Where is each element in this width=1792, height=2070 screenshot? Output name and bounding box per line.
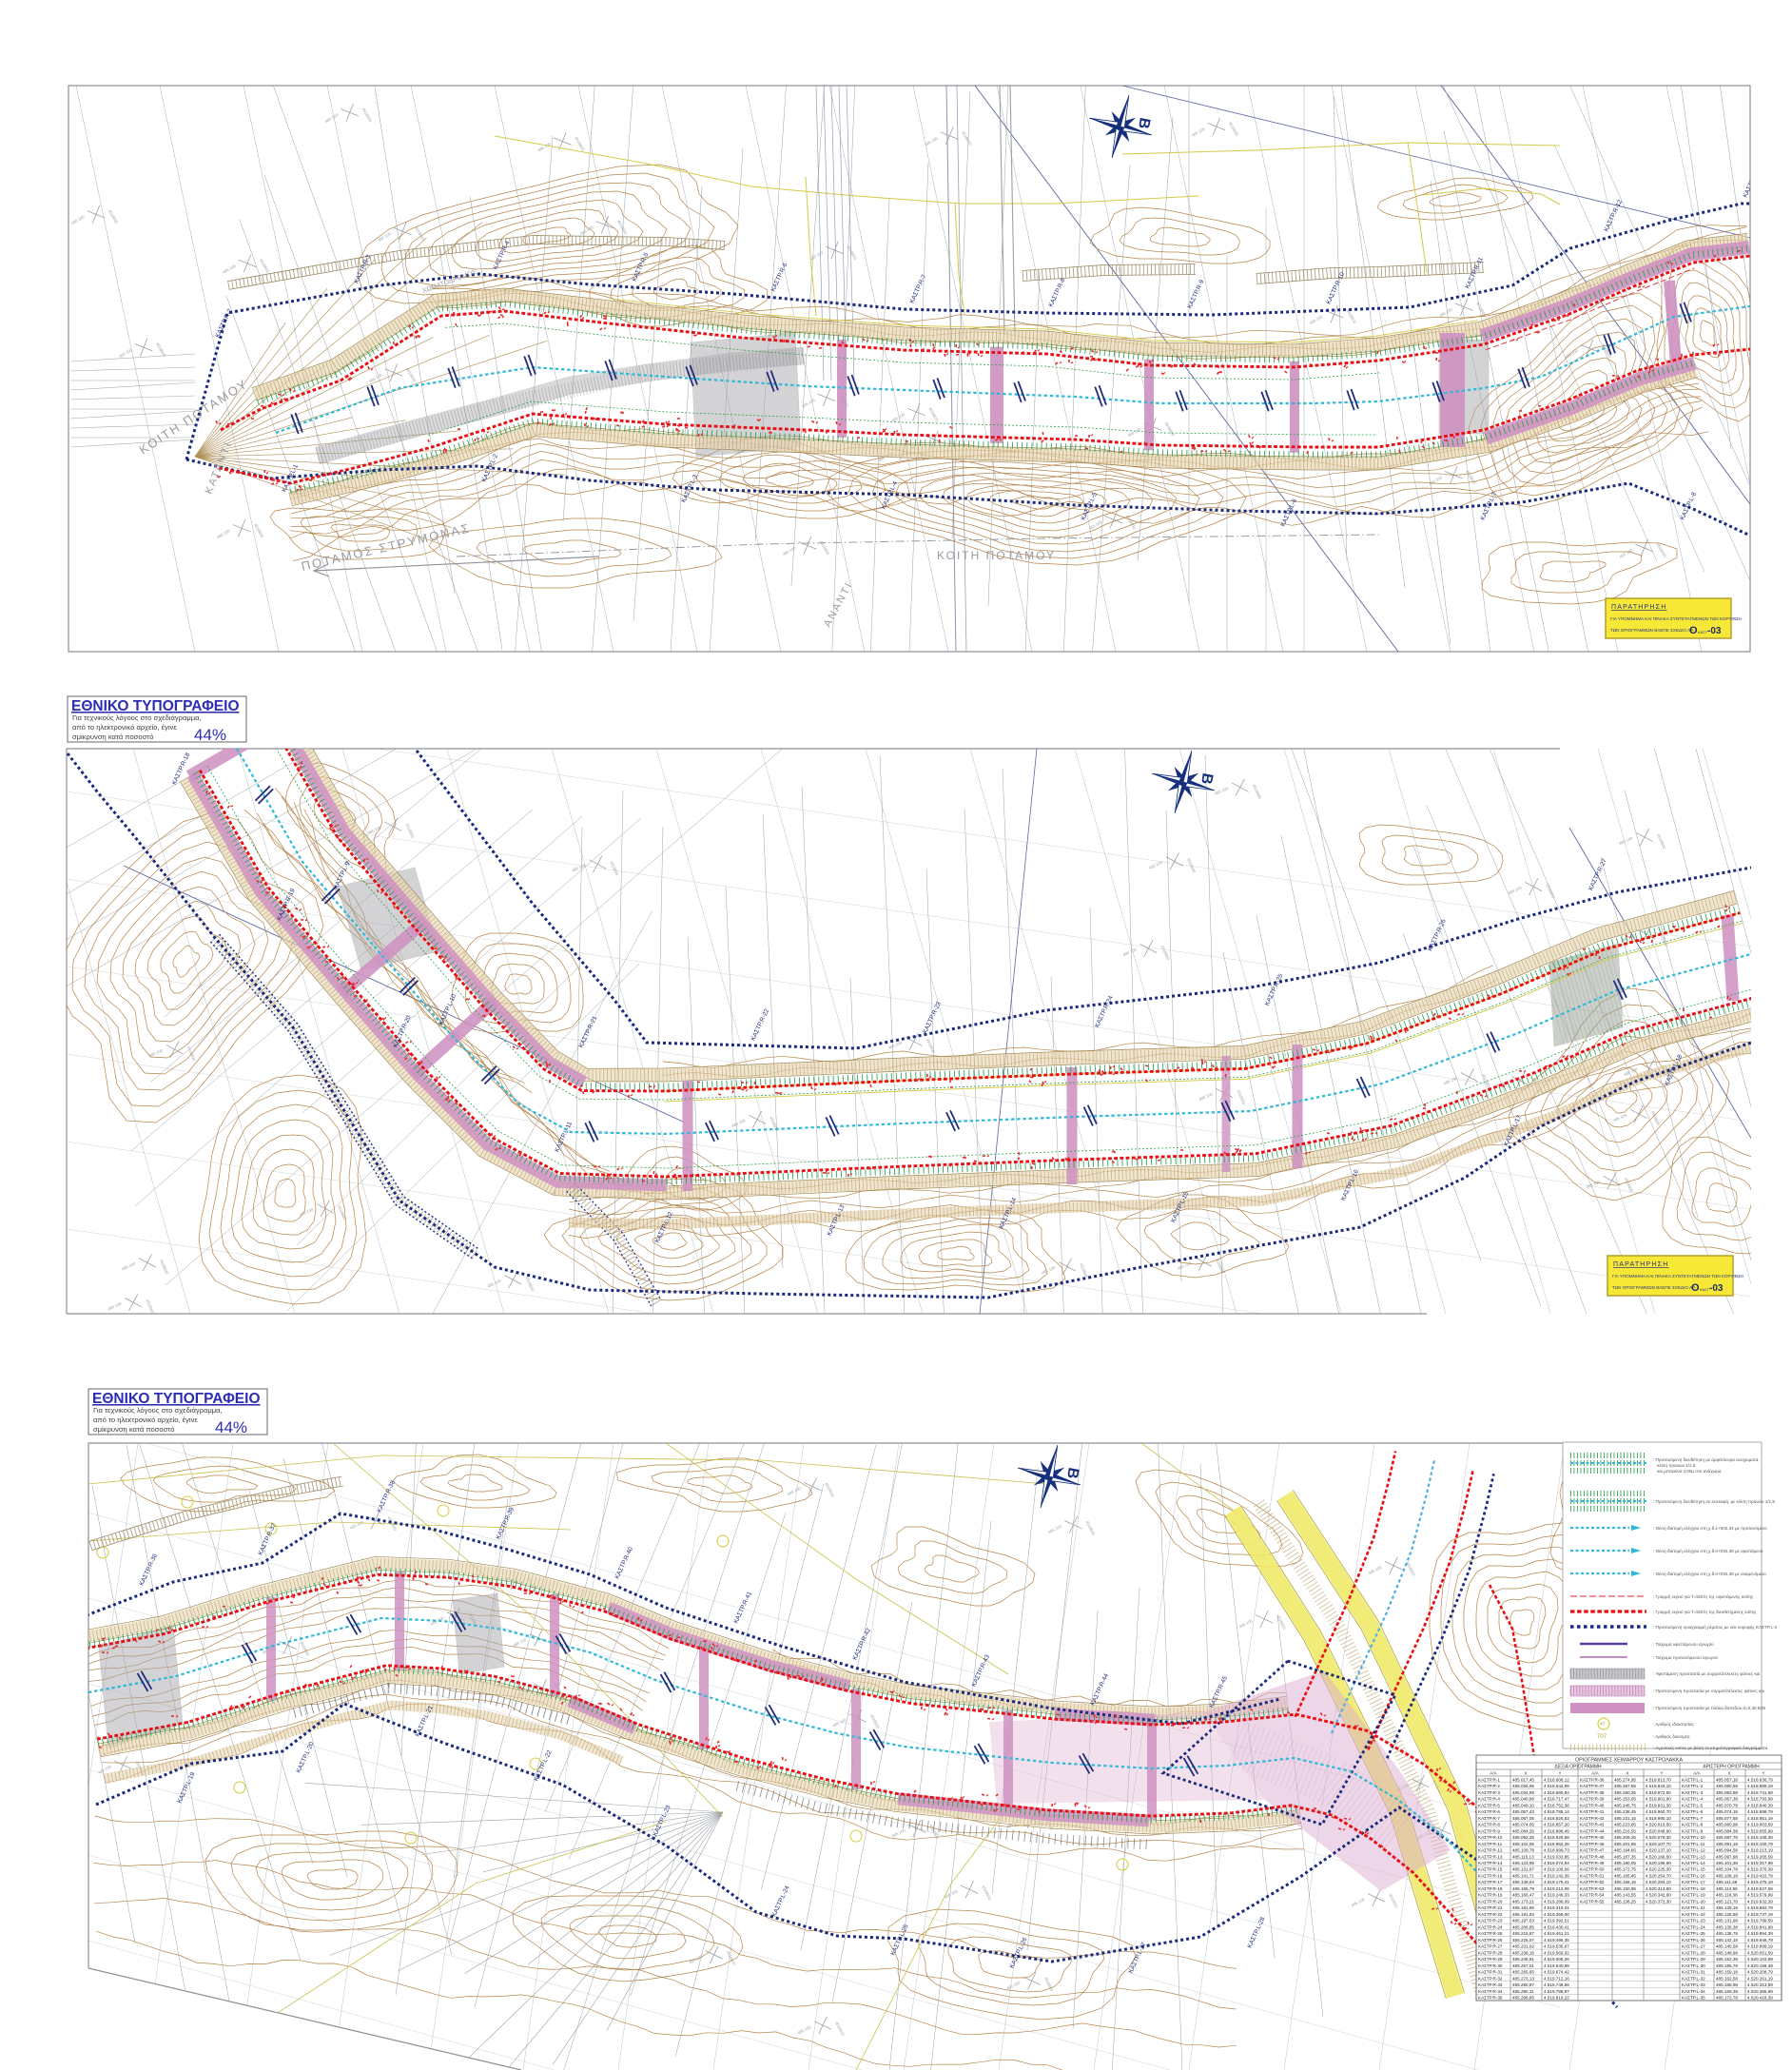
svg-text:ΚΑΣΤΡ.R-35: ΚΑΣΤΡ.R-35 <box>1478 1996 1503 2001</box>
svg-text:485.231,15: 485.231,15 <box>1614 1816 1636 1821</box>
svg-text:από το ηλεκτρονικό αρχείο, έγι: από το ηλεκτρονικό αρχείο, έγινε <box>93 1416 198 1424</box>
svg-text:485.080,98: 485.080,98 <box>1716 1823 1738 1827</box>
svg-text:ΚΑΣΤΡ.L-22: ΚΑΣΤΡ.L-22 <box>1682 1912 1705 1917</box>
svg-text:485.131,67: 485.131,67 <box>1512 1867 1534 1872</box>
svg-text:: Γραμμή νερού για Τ=50έτη της: : Γραμμή νερού για Τ=50έτη της υφιστάμεν… <box>1653 1593 1754 1599</box>
svg-text:ΚΑΣΤΡ.L-32: ΚΑΣΤΡ.L-32 <box>1682 1976 1705 1981</box>
svg-text:4.519.430,41: 4.519.430,41 <box>1544 1924 1569 1929</box>
svg-text:4.520.166,50: 4.520.166,50 <box>1646 1854 1671 1859</box>
svg-text:485.057,43: 485.057,43 <box>1512 1809 1534 1814</box>
svg-text:σμίκρυνση κατά ποσοστό: σμίκρυνση κατά ποσοστό <box>72 732 154 741</box>
svg-text:485.201,95: 485.201,95 <box>1614 1842 1636 1846</box>
svg-text:485.131,98: 485.131,98 <box>1716 1919 1738 1924</box>
svg-text:485.092,26: 485.092,26 <box>1512 1835 1534 1840</box>
svg-text:485.101,38: 485.101,38 <box>1716 1861 1738 1865</box>
svg-text:Α/Α: Α/Α <box>1490 1771 1497 1776</box>
svg-text:ΚΑΣΤΡ.L-13: ΚΑΣΤΡ.L-13 <box>1682 1854 1705 1859</box>
svg-text:ΚΑΣΤΡ.R-10: ΚΑΣΤΡ.R-10 <box>1478 1835 1503 1840</box>
svg-text:4.519.055,99: 4.519.055,99 <box>1747 1828 1773 1833</box>
svg-text:ΚΑΣΤΡ.R-20: ΚΑΣΤΡ.R-20 <box>1478 1900 1503 1904</box>
svg-text:4.518.785,14: 4.518.785,14 <box>1544 1809 1569 1814</box>
svg-text:4.519.843,10: 4.519.843,10 <box>1646 1784 1671 1788</box>
svg-text:485.159,18: 485.159,18 <box>1716 1970 1738 1975</box>
svg-text:ΚΑΣΤΡ.R-6: ΚΑΣΤΡ.R-6 <box>1478 1809 1500 1814</box>
svg-text:ΚΑΣΤΡ.R-26: ΚΑΣΤΡ.R-26 <box>1478 1938 1503 1943</box>
svg-text:: Προτεινόμενη διευθέτηση σε ε: : Προτεινόμενη διευθέτηση σε εκσκαφή, με… <box>1653 1498 1775 1504</box>
svg-text:4.519.640,99: 4.519.640,99 <box>1544 1963 1569 1968</box>
svg-text:ΚΑΣΤΡ.R-51: ΚΑΣΤΡ.R-51 <box>1580 1874 1605 1879</box>
svg-text:: Θέση-διατομή ελέγχου στη χ.θ: : Θέση-διατομή ελέγχου στη χ.θ.0+040,39 … <box>1653 1548 1763 1553</box>
svg-text:485.109,78: 485.109,78 <box>1512 1848 1534 1853</box>
svg-text:485.173,21: 485.173,21 <box>1512 1900 1534 1904</box>
svg-text:ΠΑΡΑΤΗΡΗΣΗ: ΠΑΡΑΤΗΡΗΣΗ <box>1613 1261 1668 1268</box>
svg-text:ΚΑΣΤΡ.L-33: ΚΑΣΤΡ.L-33 <box>1682 1982 1705 1987</box>
svg-text:ΚΑΣΤΡ.R-19: ΚΑΣΤΡ.R-19 <box>1478 1893 1503 1898</box>
svg-text:4.520.107,70: 4.520.107,70 <box>1646 1842 1671 1846</box>
svg-text:485.273,13: 485.273,13 <box>1512 1976 1534 1981</box>
svg-text:Χ: Χ <box>1727 1771 1730 1776</box>
svg-text:485.231,02: 485.231,02 <box>1512 1944 1534 1949</box>
svg-text:4.518.680,84: 4.518.680,84 <box>1544 1790 1569 1795</box>
svg-text:ΚΑΣΤΡ.L-26: ΚΑΣΤΡ.L-26 <box>1682 1938 1705 1943</box>
svg-text:σμίκρυνση κατά ποσοστό: σμίκρυνση κατά ποσοστό <box>93 1425 175 1434</box>
svg-text:485.063,98: 485.063,98 <box>1716 1790 1738 1795</box>
svg-text:485.084,38: 485.084,38 <box>1716 1828 1738 1833</box>
svg-text:485.165,98: 485.165,98 <box>1716 1982 1738 1987</box>
svg-text:: Θέση-διατομή ελέγχου στη χ.θ: : Θέση-διατομή ελέγχου στη χ.θ.0+040,39 … <box>1653 1571 1766 1576</box>
svg-text:ΚΑΣΤΡ.R-49: ΚΑΣΤΡ.R-49 <box>1580 1861 1605 1865</box>
svg-text:4.519.872,50: 4.519.872,50 <box>1646 1790 1671 1795</box>
svg-text:: Υφιστάμενη προστασία με συρμ: : Υφιστάμενη προστασία με συρματόπλεκτες… <box>1653 1670 1760 1676</box>
svg-text:-03: -03 <box>1709 1283 1724 1294</box>
svg-text:Υ: Υ <box>1762 1771 1764 1776</box>
svg-text:485.074,18: 485.074,18 <box>1716 1809 1738 1814</box>
svg-text:4.518.857,20: 4.518.857,20 <box>1544 1823 1569 1827</box>
svg-text:4.519.535,97: 4.519.535,97 <box>1544 1944 1569 1949</box>
svg-text:4.520.195,90: 4.520.195,90 <box>1646 1861 1671 1865</box>
svg-text:: Αριθμός ιδιοκτησίας: : Αριθμός ιδιοκτησίας <box>1653 1721 1695 1727</box>
svg-text:485.215,87: 485.215,87 <box>1512 1931 1534 1936</box>
svg-text:4.519.632,39: 4.519.632,39 <box>1747 1900 1773 1904</box>
svg-text:Χ: Χ <box>1626 1771 1628 1776</box>
svg-text:-03: -03 <box>1707 626 1722 636</box>
svg-text:ΚΑΣΤΡ.R-37: ΚΑΣΤΡ.R-37 <box>1580 1784 1605 1788</box>
svg-text:4.518.962,28: 4.518.962,28 <box>1544 1842 1569 1846</box>
svg-text:ΚΑΣΤΡ.L-31: ΚΑΣΤΡ.L-31 <box>1682 1970 1705 1975</box>
svg-text:ΚΑΣΤΡ.L-17: ΚΑΣΤΡ.L-17 <box>1682 1880 1705 1884</box>
svg-text:4.520.365,99: 4.520.365,99 <box>1747 1989 1773 1994</box>
svg-text:485.257,01: 485.257,01 <box>1512 1963 1534 1968</box>
svg-text:485.180,05: 485.180,05 <box>1614 1861 1636 1865</box>
svg-text:485.118,38: 485.118,38 <box>1716 1893 1738 1898</box>
svg-text:4.520.137,10: 4.520.137,10 <box>1646 1848 1671 1853</box>
svg-text:485.152,38: 485.152,38 <box>1716 1957 1738 1962</box>
svg-text:ΚΑΣΤΡ.R-8: ΚΑΣΤΡ.R-8 <box>1478 1823 1500 1827</box>
svg-text:485.067,38: 485.067,38 <box>1716 1797 1738 1802</box>
svg-text:: Αγροτικές κοίτες με βάση τα: : Αγροτικές κοίτες με βάση τα κτηματογρα… <box>1653 1745 1768 1750</box>
svg-text:ΚΑΣΤ: ΚΑΣΤ <box>1698 631 1707 635</box>
svg-text:ΚΑΣΤΡ.R-34: ΚΑΣΤΡ.R-34 <box>1478 1989 1503 1994</box>
svg-text:ΚΑΣΤΡ.L-23: ΚΑΣΤΡ.L-23 <box>1682 1919 1705 1924</box>
svg-text:485.142,18: 485.142,18 <box>1716 1938 1738 1943</box>
svg-text:ΚΑΣΤΡ.L-30: ΚΑΣΤΡ.L-30 <box>1682 1963 1705 1968</box>
svg-text:ΓΙΑ ΥΠΟΜΝΗΜΑ ΚΑΙ ΠΙΝΑΚΑ ΣΥΝΤΕΤ: ΓΙΑ ΥΠΟΜΝΗΜΑ ΚΑΙ ΠΙΝΑΚΑ ΣΥΝΤΕΤΑΓΜΕΝΩΝ ΤΩ… <box>1612 1274 1743 1279</box>
svg-text:4.518.752,38: 4.518.752,38 <box>1544 1803 1569 1807</box>
svg-text:ΚΑΣΤΡ.L-4: ΚΑΣΤΡ.L-4 <box>1682 1797 1704 1802</box>
svg-text:485.155,78: 485.155,78 <box>1716 1963 1738 1968</box>
svg-text:4.519.684,79: 4.519.684,79 <box>1747 1905 1773 1910</box>
svg-text:4.519.212,06: 4.519.212,06 <box>1544 1886 1569 1891</box>
svg-text:Ο: Ο <box>1691 1282 1700 1294</box>
svg-text:4.519.931,30: 4.519.931,30 <box>1646 1803 1671 1807</box>
svg-text:485.115,13: 485.115,13 <box>1512 1854 1534 1859</box>
svg-text:ΚΑΣΤΡ.L-5: ΚΑΣΤΡ.L-5 <box>1682 1803 1704 1807</box>
svg-text:485.138,78: 485.138,78 <box>1716 1931 1738 1936</box>
svg-text:4.518.898,49: 4.518.898,49 <box>1544 1828 1569 1833</box>
svg-text:ΚΑΣΤΡ.R-17: ΚΑΣΤΡ.R-17 <box>1478 1880 1503 1884</box>
svg-text:485.223,85: 485.223,85 <box>1614 1823 1636 1827</box>
svg-text:4.519.785,97: 4.519.785,97 <box>1544 1989 1569 1994</box>
svg-text:: Τοίχωμα προτεινόμενου αγωγού: : Τοίχωμα προτεινόμενου αγωγού <box>1653 1654 1719 1660</box>
svg-text:47: 47 <box>1600 1722 1606 1728</box>
svg-text:ΚΑΣΤΡ.R-32: ΚΑΣΤΡ.R-32 <box>1478 1976 1503 1981</box>
svg-text:ΚΑΣΤΡ.R-7: ΚΑΣΤΡ.R-7 <box>1478 1816 1500 1821</box>
svg-text:485.162,58: 485.162,58 <box>1716 1976 1738 1981</box>
svg-text:44%: 44% <box>194 726 226 744</box>
svg-text:4.518.689,19: 4.518.689,19 <box>1747 1784 1773 1788</box>
svg-text:485.034,69: 485.034,69 <box>1512 1790 1534 1795</box>
svg-text:485.097,98: 485.097,98 <box>1716 1854 1738 1859</box>
svg-text:485.296,85: 485.296,85 <box>1512 1996 1534 2001</box>
svg-text:ΟΡΙΟΓΡΑΜΜΕΣ ΧΕΙΜΑΡΡΟΥ ΚΑΣΤΡΟΛΑ: ΟΡΙΟΓΡΑΜΜΕΣ ΧΕΙΜΑΡΡΟΥ ΚΑΣΤΡΟΛΑΚΚΑ <box>1575 1758 1684 1764</box>
svg-text:ΚΑΣΤΡ.R-46: ΚΑΣΤΡ.R-46 <box>1580 1842 1605 1846</box>
svg-text:485.143,55: 485.143,55 <box>1614 1893 1636 1898</box>
svg-text:485.253,05: 485.253,05 <box>1614 1797 1636 1802</box>
svg-text:4.518.741,59: 4.518.741,59 <box>1747 1790 1773 1795</box>
svg-text:ΚΑΣΤΡ.L-15: ΚΑΣΤΡ.L-15 <box>1682 1867 1705 1872</box>
svg-text:: Τοίχωμα υφιστάμενου αγωγού: : Τοίχωμα υφιστάμενου αγωγού <box>1653 1641 1714 1647</box>
svg-text:4.519.033,85: 4.519.033,85 <box>1544 1854 1569 1859</box>
svg-text:485.114,98: 485.114,98 <box>1716 1886 1738 1891</box>
svg-text:4.518.793,99: 4.518.793,99 <box>1747 1797 1773 1802</box>
svg-text:485.040,98: 485.040,98 <box>1512 1797 1534 1802</box>
svg-text:ΚΑΣΤΡ.R-18: ΚΑΣΤΡ.R-18 <box>1478 1886 1503 1891</box>
svg-text:από το ηλεκτρονικό αρχείο, έγι: από το ηλεκτρονικό αρχείο, έγινε <box>72 723 177 732</box>
svg-text:Για τεχνικούς λόγους στο σ: Για τεχνικούς λόγους στο σχεδιάγραμμα, <box>93 1406 223 1415</box>
svg-text:ΚΑΣΤΡ.R-40: ΚΑΣΤΡ.R-40 <box>1580 1803 1605 1807</box>
svg-text:485.026,95: 485.026,95 <box>1512 1784 1534 1788</box>
svg-text:ΚΑΣΤΡ.R-24: ΚΑΣΤΡ.R-24 <box>1478 1924 1503 1929</box>
svg-text:4.519.249,33: 4.519.249,33 <box>1544 1893 1569 1898</box>
svg-text:ΚΑΣΤΡ.L-18: ΚΑΣΤΡ.L-18 <box>1682 1886 1705 1891</box>
svg-text:ΚΑΣΤΡ.L-35: ΚΑΣΤΡ.L-35 <box>1682 1996 1705 2001</box>
svg-text:4.520.078,30: 4.520.078,30 <box>1646 1835 1671 1840</box>
svg-text:ΚΑΣΤΡ.R-29: ΚΑΣΤΡ.R-29 <box>1478 1957 1503 1962</box>
svg-text:ΚΑΣΤΡ.L-2: ΚΑΣΤΡ.L-2 <box>1682 1784 1704 1788</box>
svg-text:4.520.261,19: 4.520.261,19 <box>1747 1976 1773 1981</box>
svg-text:485.111,58: 485.111,58 <box>1716 1880 1738 1884</box>
svg-text:ΚΑΣΤΡ.R-15: ΚΑΣΤΡ.R-15 <box>1478 1867 1503 1872</box>
svg-text:4.520.313,59: 4.520.313,59 <box>1747 1982 1773 1987</box>
svg-text:ΠΑΡΑΤΗΡΗΣΗ: ΠΑΡΑΤΗΡΗΣΗ <box>1611 604 1666 611</box>
svg-text:ΓΙΑ ΥΠΟΜΝΗΜΑ ΚΑΙ ΠΙΝΑΚΑ ΣΥΝΤΕΤ: ΓΙΑ ΥΠΟΜΝΗΜΑ ΚΑΙ ΠΙΝΑΚΑ ΣΥΝΤΕΤΑΓΜΕΝΩΝ ΤΩ… <box>1610 616 1742 621</box>
svg-text:4.519.142,39: 4.519.142,39 <box>1544 1874 1569 1879</box>
svg-text:ΚΑΣΤΡ.R-33: ΚΑΣΤΡ.R-33 <box>1478 1982 1503 1987</box>
svg-text:4.519.901,90: 4.519.901,90 <box>1646 1797 1671 1802</box>
svg-text:4.519.946,79: 4.519.946,79 <box>1747 1938 1773 1943</box>
svg-text:ΚΑΣΤΡ.L-20: ΚΑΣΤΡ.L-20 <box>1682 1900 1705 1904</box>
svg-text:485.060,58: 485.060,58 <box>1716 1784 1738 1788</box>
svg-text:4.519.108,56: 4.519.108,56 <box>1544 1867 1569 1872</box>
svg-text:4.518.929,58: 4.518.929,58 <box>1544 1835 1569 1840</box>
svg-text:485.049,10: 485.049,10 <box>1512 1803 1534 1807</box>
svg-text:4.519.990,10: 4.519.990,10 <box>1646 1816 1671 1821</box>
svg-text:4.518.642,99: 4.518.642,99 <box>1544 1784 1569 1788</box>
svg-text:4.518.898,79: 4.518.898,79 <box>1747 1809 1773 1814</box>
svg-text:485.191,53: 485.191,53 <box>1512 1912 1534 1917</box>
svg-text:485.057,18: 485.057,18 <box>1716 1777 1738 1782</box>
svg-text:4.520.225,30: 4.520.225,30 <box>1646 1867 1671 1872</box>
svg-text:4.519.265,59: 4.519.265,59 <box>1747 1854 1773 1859</box>
svg-text:ΚΑΣΤΡ.R-12: ΚΑΣΤΡ.R-12 <box>1478 1848 1503 1853</box>
svg-text:ΚΑΣΤΡ.L-24: ΚΑΣΤΡ.L-24 <box>1682 1924 1705 1929</box>
svg-text:485.274,95: 485.274,95 <box>1614 1777 1636 1782</box>
svg-text:ΚΑΣΤΡ.R-1: ΚΑΣΤΡ.R-1 <box>1478 1777 1500 1782</box>
svg-text:ΤΩΝ ΟΡΙΟΓΡΑΜΜΩΝ ΒΛΕΠΕ ΣΧΕΔΙΟ Α: ΤΩΝ ΟΡΙΟΓΡΑΜΜΩΝ ΒΛΕΠΕ ΣΧΕΔΙΟ ΑΡ. <box>1610 628 1694 633</box>
svg-text:ΚΑΣΤΡ.L-11: ΚΑΣΤΡ.L-11 <box>1682 1842 1705 1846</box>
svg-text:4.519.841,99: 4.519.841,99 <box>1747 1924 1773 1929</box>
svg-text:ΚΑΣΤΡ.R-44: ΚΑΣΤΡ.R-44 <box>1580 1828 1605 1833</box>
svg-text:485.260,35: 485.260,35 <box>1614 1790 1636 1795</box>
svg-text:Α/Α: Α/Α <box>1591 1771 1599 1776</box>
svg-text:ΚΑΣΤΡ.L-3: ΚΑΣΤΡ.L-3 <box>1682 1790 1704 1795</box>
svg-text:4.519.569,32: 4.519.569,32 <box>1544 1950 1569 1955</box>
svg-text:: Γραμμή νερού για Τ=50έτη της: : Γραμμή νερού για Τ=50έτη της διευθετημ… <box>1653 1609 1757 1614</box>
svg-text:485.135,38: 485.135,38 <box>1716 1924 1738 1929</box>
svg-text:4.519.074,94: 4.519.074,94 <box>1544 1861 1569 1865</box>
svg-text:4.518.826,52: 4.518.826,52 <box>1544 1816 1569 1821</box>
svg-text:485.245,91: 485.245,91 <box>1512 1957 1534 1962</box>
svg-text:707: 707 <box>1597 1734 1607 1740</box>
svg-text:Υ: Υ <box>1660 1771 1663 1776</box>
svg-text:ΚΑΣΤΡ.R-27: ΚΑΣΤΡ.R-27 <box>1478 1944 1503 1949</box>
svg-text:ΚΑΣΤΡ.R-50: ΚΑΣΤΡ.R-50 <box>1580 1867 1605 1872</box>
svg-text:Υ: Υ <box>1558 1771 1561 1776</box>
svg-text:485.166,47: 485.166,47 <box>1512 1893 1534 1898</box>
svg-text:485.238,45: 485.238,45 <box>1614 1809 1636 1814</box>
svg-text:ΚΑΣΤΡ.R-30: ΚΑΣΤΡ.R-30 <box>1478 1963 1503 1968</box>
svg-text:485.206,85: 485.206,85 <box>1512 1924 1534 1929</box>
svg-text:4.520.313,50: 4.520.313,50 <box>1646 1886 1671 1891</box>
svg-text:ΚΑΣΤΡ.R-45: ΚΑΣΤΡ.R-45 <box>1580 1835 1605 1840</box>
svg-text:4.518.951,19: 4.518.951,19 <box>1747 1816 1773 1821</box>
svg-text:485.128,58: 485.128,58 <box>1716 1912 1738 1917</box>
svg-text:485.123,98: 485.123,98 <box>1512 1861 1534 1865</box>
svg-text:485.104,78: 485.104,78 <box>1716 1867 1738 1872</box>
svg-text:ΚΑΣΤΡ.R-41: ΚΑΣΤΡ.R-41 <box>1580 1809 1605 1814</box>
svg-text:ΚΑΣΤΡ.R-11: ΚΑΣΤΡ.R-11 <box>1478 1842 1503 1846</box>
svg-text:44%: 44% <box>215 1418 247 1436</box>
svg-text:485.108,18: 485.108,18 <box>1716 1874 1738 1879</box>
svg-text:ΚΑΣΤΡ.L-21: ΚΑΣΤΡ.L-21 <box>1682 1905 1705 1910</box>
svg-text:: Προτεινόμενη προστασία με πλ: : Προτεινόμενη προστασία με πλάκα δαπέδο… <box>1653 1705 1765 1710</box>
svg-text:ΚΟΙΤΗ ΠΟΤΑΜΟΥ: ΚΟΙΤΗ ΠΟΤΑΜΟΥ <box>937 549 1056 562</box>
svg-text:4.519.392,51: 4.519.392,51 <box>1544 1919 1569 1924</box>
svg-text:: Προτεινόμενη διευθέτηση με α: : Προτεινόμενη διευθέτηση με αμφίπλευρα … <box>1653 1456 1760 1462</box>
svg-text:485.155,79: 485.155,79 <box>1512 1886 1534 1891</box>
svg-text:ΑΡΙΣΤΕΡΗ ΟΡΙΟΓΡΑΜΜΗ: ΑΡΙΣΤΕΡΗ ΟΡΙΟΓΡΑΜΜΗ <box>1703 1765 1760 1770</box>
svg-text:ΚΑΣΤΡ.L-16: ΚΑΣΤΡ.L-16 <box>1682 1874 1705 1879</box>
svg-text:485.145,58: 485.145,58 <box>1716 1944 1738 1949</box>
svg-text:ΚΑΣΤΡ.R-52: ΚΑΣΤΡ.R-52 <box>1580 1880 1605 1884</box>
svg-text:ΚΑΣΤΡ.R-39: ΚΑΣΤΡ.R-39 <box>1580 1797 1605 1802</box>
svg-text:ΚΑΣΤΡ.R-14: ΚΑΣΤΡ.R-14 <box>1478 1861 1503 1865</box>
svg-text:485.125,18: 485.125,18 <box>1716 1905 1738 1910</box>
svg-text:4.520.019,50: 4.520.019,50 <box>1646 1823 1671 1827</box>
svg-text:ΚΑΣΤΡ.R-55: ΚΑΣΤΡ.R-55 <box>1580 1900 1605 1904</box>
svg-text:ΚΑΣΤΡ.L-1: ΚΑΣΤΡ.L-1 <box>1682 1777 1704 1782</box>
svg-text:4.520.156,39: 4.520.156,39 <box>1747 1963 1773 1968</box>
svg-text:485.102,06: 485.102,06 <box>1512 1842 1534 1846</box>
svg-text:ΕΘΝΙΚΟ ΤΥΠΟΓΡΑΦΕΙΟ: ΕΘΝΙΚΟ ΤΥΠΟΓΡΑΦΕΙΟ <box>71 698 240 714</box>
svg-text:4.520.372,30: 4.520.372,30 <box>1646 1900 1671 1904</box>
svg-text:485.084,26: 485.084,26 <box>1512 1828 1534 1833</box>
svg-text:485.238,16: 485.238,16 <box>1512 1950 1534 1955</box>
svg-text:4.518.999,73: 4.518.999,73 <box>1544 1848 1569 1853</box>
svg-text:ΚΑΣΤΡ.L-12: ΚΑΣΤΡ.L-12 <box>1682 1848 1705 1853</box>
svg-text:4.519.527,59: 4.519.527,59 <box>1747 1886 1773 1891</box>
svg-text:485.181,96: 485.181,96 <box>1512 1905 1534 1910</box>
svg-text:485.148,98: 485.148,98 <box>1716 1950 1738 1955</box>
svg-text:4.519.461,21: 4.519.461,21 <box>1544 1931 1569 1936</box>
svg-text:ΚΑΣΤΡ.R-31: ΚΑΣΤΡ.R-31 <box>1478 1970 1503 1975</box>
svg-text:485.150,85: 485.150,85 <box>1614 1886 1636 1891</box>
svg-text:ΚΑΣΤΡ.L-9: ΚΑΣΤΡ.L-9 <box>1682 1828 1704 1833</box>
svg-text:485.094,58: 485.094,58 <box>1716 1848 1738 1853</box>
svg-text:485.290,11: 485.290,11 <box>1512 1989 1534 1994</box>
svg-text:4.519.813,70: 4.519.813,70 <box>1646 1777 1671 1782</box>
svg-text:ΚΑΣΤΡ.L-6: ΚΑΣΤΡ.L-6 <box>1682 1809 1704 1814</box>
svg-text:ΤΩΝ ΟΡΙΟΓΡΑΜΜΩΝ ΒΛΕΠΕ ΣΧΕΔΙΟ Α: ΤΩΝ ΟΡΙΟΓΡΑΜΜΩΝ ΒΛΕΠΕ ΣΧΕΔΙΟ ΑΡ. <box>1612 1285 1696 1290</box>
svg-text:ΕΘΝΙΚΟ ΤΥΠΟΓΡΑΦΕΙΟ: ΕΘΝΙΚΟ ΤΥΠΟΓΡΑΦΕΙΟ <box>92 1391 261 1407</box>
svg-text:ΚΑΣΤΡ.L-27: ΚΑΣΤΡ.L-27 <box>1682 1944 1705 1949</box>
svg-text:ΚΑΣΤΡ.L-19: ΚΑΣΤΡ.L-19 <box>1682 1893 1705 1898</box>
svg-text:4.519.712,16: 4.519.712,16 <box>1544 1976 1569 1981</box>
svg-text:485.216,55: 485.216,55 <box>1614 1828 1636 1833</box>
svg-text:485.141,71: 485.141,71 <box>1512 1874 1534 1879</box>
svg-text:485.158,15: 485.158,15 <box>1614 1880 1636 1884</box>
svg-text:4.519.999,19: 4.519.999,19 <box>1747 1944 1773 1949</box>
svg-text:4.519.894,39: 4.519.894,39 <box>1747 1931 1773 1936</box>
svg-text:4.519.960,70: 4.519.960,70 <box>1646 1809 1671 1814</box>
svg-text:4.519.358,00: 4.519.358,00 <box>1544 1912 1569 1917</box>
svg-text:4.519.108,39: 4.519.108,39 <box>1747 1835 1773 1840</box>
svg-text:485.265,65: 485.265,65 <box>1512 1970 1534 1975</box>
svg-text:485.197,53: 485.197,53 <box>1512 1919 1534 1924</box>
svg-text:485.091,18: 485.091,18 <box>1716 1842 1738 1846</box>
svg-text:Ο: Ο <box>1689 625 1698 636</box>
svg-text:485.074,05: 485.074,05 <box>1512 1823 1534 1827</box>
svg-text:485.267,65: 485.267,65 <box>1614 1784 1636 1788</box>
svg-text:: Θέση-διατομή ελέγχου στη χ.θ: : Θέση-διατομή ελέγχου στη χ.θ.1+602,34 … <box>1653 1525 1767 1531</box>
svg-text:4.518.636,79: 4.518.636,79 <box>1747 1777 1773 1782</box>
svg-text:4.518.717,47: 4.518.717,47 <box>1544 1797 1569 1802</box>
svg-text:4.519.737,19: 4.519.737,19 <box>1747 1912 1773 1917</box>
svg-text:ΚΑΣΤ: ΚΑΣΤ <box>1700 1288 1709 1292</box>
svg-text:4.520.254,70: 4.520.254,70 <box>1646 1874 1671 1879</box>
svg-text:485.169,38: 485.169,38 <box>1716 1989 1738 1994</box>
svg-text:4.519.579,99: 4.519.579,99 <box>1747 1893 1773 1898</box>
svg-text:485.280,87: 485.280,87 <box>1512 1982 1534 1987</box>
svg-text:4.519.286,09: 4.519.286,09 <box>1544 1900 1569 1904</box>
svg-text:4.519.370,39: 4.519.370,39 <box>1747 1867 1773 1872</box>
svg-text:485.245,75: 485.245,75 <box>1614 1803 1636 1807</box>
svg-text:4.519.317,99: 4.519.317,99 <box>1747 1861 1773 1865</box>
svg-text:4.519.003,59: 4.519.003,59 <box>1747 1823 1773 1827</box>
svg-text:ΚΑΣΤΡ.R-48: ΚΑΣΤΡ.R-48 <box>1580 1854 1605 1859</box>
svg-text:ΚΑΣΤΡ.R-21: ΚΑΣΤΡ.R-21 <box>1478 1905 1503 1910</box>
svg-text:ΚΑΣΤΡ.L-7: ΚΑΣΤΡ.L-7 <box>1682 1816 1704 1821</box>
svg-text:485.017,45: 485.017,45 <box>1512 1777 1534 1782</box>
svg-text:4.519.495,35: 4.519.495,35 <box>1544 1938 1569 1943</box>
svg-text:485.149,54: 485.149,54 <box>1512 1880 1534 1884</box>
svg-text:Α/Α: Α/Α <box>1693 1771 1701 1776</box>
svg-text:ΚΑΣΤΡ.R-2: ΚΑΣΤΡ.R-2 <box>1478 1784 1500 1788</box>
svg-text:4.520.051,59: 4.520.051,59 <box>1747 1950 1773 1955</box>
svg-text:485.077,58: 485.077,58 <box>1716 1816 1738 1821</box>
svg-text:και μπαγκίνα 4,00μ στο ανάχωμα: και μπαγκίνα 4,00μ στο ανάχωμα <box>1657 1468 1722 1474</box>
svg-text:ΚΑΣΤΡ.L-10: ΚΑΣΤΡ.L-10 <box>1682 1835 1705 1840</box>
svg-text:ΚΑΣΤΡ.L-8: ΚΑΣΤΡ.L-8 <box>1682 1823 1704 1827</box>
svg-text:4.518.846,39: 4.518.846,39 <box>1747 1803 1773 1807</box>
svg-text:4.519.175,41: 4.519.175,41 <box>1544 1880 1569 1884</box>
svg-text:485.087,78: 485.087,78 <box>1716 1835 1738 1840</box>
svg-text:ΚΑΣΤΡ.L-28: ΚΑΣΤΡ.L-28 <box>1682 1950 1705 1955</box>
svg-text:485.121,78: 485.121,78 <box>1716 1900 1738 1904</box>
svg-text:485.136,25: 485.136,25 <box>1614 1900 1636 1904</box>
svg-text:: Προτεινόμενη οριογραμμή ρέμα: : Προτεινόμενη οριογραμμή ρέματος με νέα… <box>1653 1624 1778 1630</box>
svg-text:ΚΑΣΤΡ.R-5: ΚΑΣΤΡ.R-5 <box>1478 1803 1500 1807</box>
svg-text:ΚΑΣΤΡ.R-54: ΚΑΣΤΡ.R-54 <box>1580 1893 1605 1898</box>
svg-text:485.225,07: 485.225,07 <box>1512 1938 1534 1943</box>
svg-text:: Προτεινόμενη προστασία με συ: : Προτεινόμενη προστασία με συρματόπλεκτ… <box>1653 1688 1764 1693</box>
svg-text:4.519.746,56: 4.519.746,56 <box>1544 1982 1569 1987</box>
svg-text:485.172,78: 485.172,78 <box>1716 1996 1738 2001</box>
svg-text:Για τεχνικούς λόγους στο σ: Για τεχνικούς λόγους στο σχεδιάγραμμα, <box>72 713 202 722</box>
svg-text:ΚΑΣΤΡ.L-14: ΚΑΣΤΡ.L-14 <box>1682 1861 1705 1865</box>
svg-text:ΚΑΣΤΡ.L-25: ΚΑΣΤΡ.L-25 <box>1682 1931 1705 1936</box>
svg-text:4.519.160,79: 4.519.160,79 <box>1747 1842 1773 1846</box>
svg-text:485.070,78: 485.070,78 <box>1716 1803 1738 1807</box>
svg-text:ΚΑΣΤΡ.R-16: ΚΑΣΤΡ.R-16 <box>1478 1874 1503 1879</box>
svg-text:: Αριθμός διανομής: : Αριθμός διανομής <box>1653 1733 1691 1739</box>
svg-text:4.519.475,19: 4.519.475,19 <box>1747 1880 1773 1884</box>
svg-text:4.518.608,12: 4.518.608,12 <box>1544 1777 1569 1782</box>
svg-text:ΚΑΣΤΡ.R-25: ΚΑΣΤΡ.R-25 <box>1478 1931 1503 1936</box>
svg-text:485.165,45: 485.165,45 <box>1614 1874 1636 1879</box>
svg-text:ΚΑΣΤΡ.R-4: ΚΑΣΤΡ.R-4 <box>1478 1797 1500 1802</box>
svg-text:485.067,05: 485.067,05 <box>1512 1816 1534 1821</box>
svg-text:4.520.342,90: 4.520.342,90 <box>1646 1893 1671 1898</box>
svg-text:4.519.674,42: 4.519.674,42 <box>1544 1970 1569 1975</box>
svg-text:485.187,35: 485.187,35 <box>1614 1854 1636 1859</box>
svg-text:ΚΑΣΤΡ.R-22: ΚΑΣΤΡ.R-22 <box>1478 1912 1503 1917</box>
svg-text:4.519.422,79: 4.519.422,79 <box>1747 1874 1773 1879</box>
svg-text:ΚΑΣΤΡ.L-34: ΚΑΣΤΡ.L-34 <box>1682 1989 1705 1994</box>
svg-text:4.519.213,19: 4.519.213,19 <box>1747 1848 1773 1853</box>
svg-text:Χ: Χ <box>1524 1771 1527 1776</box>
svg-text:ΚΑΣΤΡ.R-43: ΚΑΣΤΡ.R-43 <box>1580 1823 1605 1827</box>
